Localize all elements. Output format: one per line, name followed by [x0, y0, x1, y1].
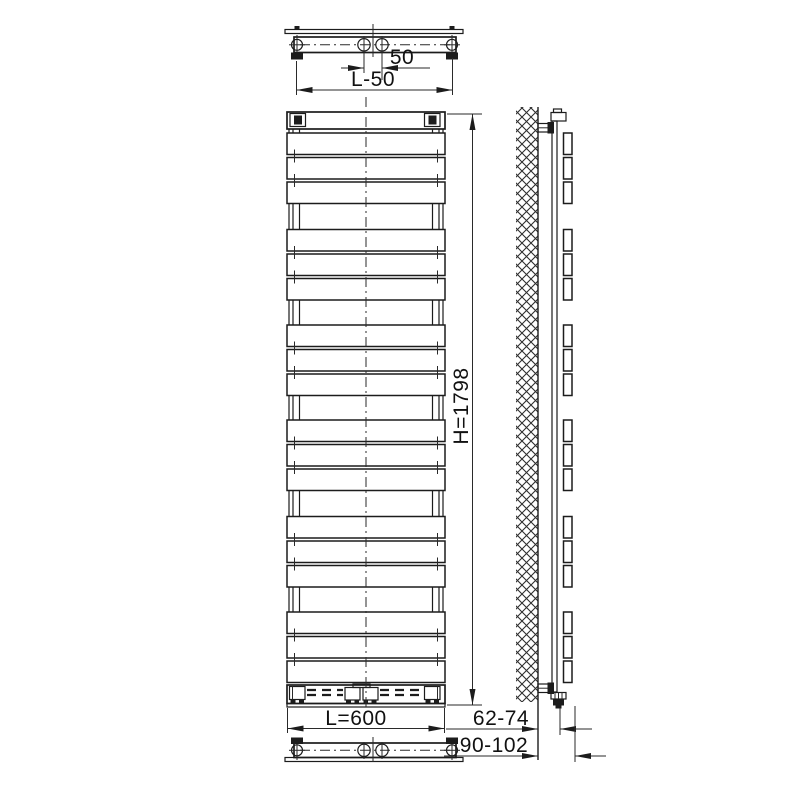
- side-panel: [564, 566, 573, 588]
- air-vent-cap: [551, 109, 566, 121]
- mounting-bolt-right: [444, 26, 460, 60]
- side-valve-bottom: [551, 693, 566, 709]
- side-panel: [564, 374, 573, 396]
- rail-plate: [285, 758, 463, 762]
- collector-tube-side: [552, 121, 557, 692]
- side-view: [516, 107, 572, 760]
- side-panel: [564, 541, 573, 563]
- side-panel: [564, 279, 573, 301]
- side-panel: [564, 230, 573, 252]
- dimension-height: H=1798: [447, 114, 482, 705]
- valve-assembly: [345, 684, 378, 704]
- side-panel: [564, 158, 573, 180]
- dim-label-height: H=1798: [450, 367, 473, 444]
- technical-drawing: 50 L-50: [0, 0, 800, 800]
- side-panel: [564, 182, 573, 204]
- mounting-bolt-left: [289, 738, 305, 761]
- side-panel: [564, 637, 573, 659]
- side-panel: [564, 133, 573, 155]
- dimension-mounting-span: L-50: [297, 58, 453, 95]
- bottom-view: [285, 737, 463, 762]
- top-clip-left: [290, 114, 306, 127]
- dim-label-62-74: 62-74: [473, 707, 529, 730]
- side-view-panels: [564, 133, 573, 683]
- side-panel: [564, 254, 573, 276]
- dim-label-90-102: 90-102: [460, 734, 528, 757]
- side-panel: [564, 517, 573, 539]
- bottom-bracket-right: [425, 687, 441, 704]
- side-panel: [564, 420, 573, 442]
- wall-hatch: [516, 107, 538, 702]
- side-panel: [564, 661, 573, 683]
- dimension-wall-to-axis: 62-74: [446, 707, 592, 735]
- side-panel: [564, 612, 573, 634]
- mounting-bolt-left: [289, 26, 305, 60]
- side-panel: [564, 325, 573, 347]
- side-panel: [564, 350, 573, 372]
- dim-label-l50: L-50: [351, 68, 395, 91]
- bottom-bracket-left: [290, 687, 306, 704]
- top-view: [285, 24, 463, 60]
- side-panel: [564, 445, 573, 467]
- front-view: [287, 97, 445, 714]
- side-panel: [564, 469, 573, 491]
- dim-label-width: L=600: [325, 707, 386, 730]
- mounting-bolt-right: [444, 738, 460, 761]
- top-clip-right: [425, 114, 441, 127]
- dim-label-50: 50: [390, 46, 414, 69]
- rail-plate: [285, 30, 463, 34]
- dimension-width: L=600: [288, 707, 445, 733]
